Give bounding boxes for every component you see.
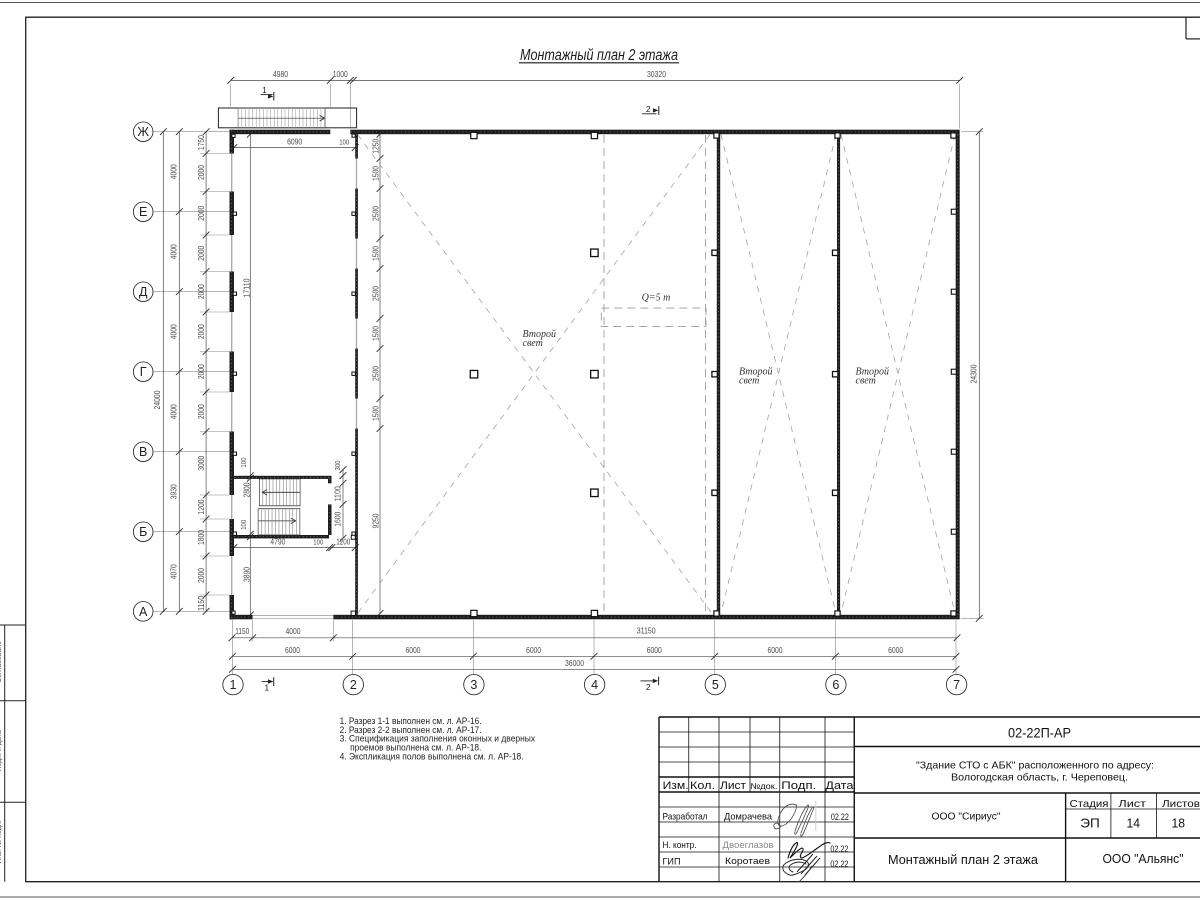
svg-text:30320: 30320: [647, 70, 666, 79]
svg-text:02.22: 02.22: [831, 812, 849, 823]
svg-text:1: 1: [264, 683, 269, 693]
svg-text:3000: 3000: [197, 455, 206, 470]
svg-text:4000: 4000: [170, 324, 179, 339]
svg-text:Согласовано: Согласовано: [0, 641, 3, 683]
svg-text:6000: 6000: [526, 646, 541, 655]
svg-text:14: 14: [1127, 816, 1141, 830]
svg-text:6000: 6000: [285, 646, 300, 655]
svg-text:ООО "Сириус": ООО "Сириус": [932, 811, 1001, 823]
svg-text:1: 1: [230, 678, 237, 692]
svg-text:6000: 6000: [647, 646, 662, 655]
svg-text:1500: 1500: [371, 166, 380, 181]
svg-text:Кол.: Кол.: [690, 780, 715, 792]
svg-text:7: 7: [953, 678, 960, 692]
svg-text:18: 18: [1172, 816, 1186, 830]
svg-text:4: 4: [591, 678, 598, 692]
svg-text:"Здание СТО с АБК" расположенн: "Здание СТО с АБК" расположенного по адр…: [916, 759, 1154, 771]
svg-text:02-22П-АР: 02-22П-АР: [1008, 725, 1071, 740]
svg-text:Вологодская область, г. Черепо: Вологодская область, г. Череповец.: [951, 772, 1128, 784]
svg-text:100: 100: [313, 538, 323, 547]
svg-text:1500: 1500: [371, 406, 380, 421]
svg-text:Инв. № подл.: Инв. № подл.: [0, 820, 3, 864]
svg-text:Q=5 т: Q=5 т: [642, 293, 671, 304]
svg-text:1000: 1000: [333, 70, 348, 79]
svg-text:1: 1: [262, 85, 267, 95]
svg-text:2: 2: [350, 678, 357, 692]
svg-text:Д: Д: [139, 285, 148, 299]
svg-text:Листов: Листов: [1162, 798, 1200, 810]
svg-text:2500: 2500: [371, 206, 380, 221]
svg-text:4000: 4000: [286, 627, 301, 636]
svg-text:100: 100: [239, 520, 248, 530]
svg-text:1250: 1250: [371, 138, 380, 153]
svg-text:2000: 2000: [197, 568, 206, 583]
svg-text:4000: 4000: [170, 164, 179, 179]
svg-text:свет: свет: [739, 376, 759, 387]
svg-text:4980: 4980: [273, 70, 288, 79]
svg-text:В: В: [139, 445, 147, 459]
svg-text:1200: 1200: [336, 538, 350, 547]
svg-text:2000: 2000: [197, 245, 206, 260]
svg-text:1150: 1150: [197, 595, 206, 610]
svg-text:Домрачева: Домрачева: [724, 812, 773, 823]
svg-text:2000: 2000: [197, 284, 206, 299]
svg-text:2: 2: [646, 682, 651, 692]
svg-text:3890: 3890: [242, 567, 251, 582]
svg-text:5: 5: [712, 678, 719, 692]
svg-text:Разработал: Разработал: [663, 812, 708, 823]
svg-text:36000: 36000: [565, 659, 584, 668]
svg-text:6000: 6000: [888, 646, 903, 655]
svg-text:02.22: 02.22: [830, 844, 848, 855]
svg-text:6: 6: [832, 678, 839, 692]
svg-text:Монтажный план 2 этажа: Монтажный план 2 этажа: [520, 47, 678, 64]
svg-text:4. Экспликация полов выполнена: 4. Экспликация полов выполнена см. л. АР…: [340, 751, 524, 761]
svg-text:Монтажный план 2 этажа: Монтажный план 2 этажа: [888, 853, 1038, 867]
svg-text:1600: 1600: [334, 511, 343, 526]
svg-text:А: А: [139, 605, 148, 619]
svg-text:1150: 1150: [235, 627, 249, 636]
svg-text:02.22: 02.22: [830, 859, 848, 870]
svg-text:9250: 9250: [371, 513, 380, 528]
svg-text:Б: Б: [139, 525, 147, 539]
svg-text:Ж: Ж: [137, 125, 149, 139]
svg-text:1500: 1500: [371, 326, 380, 341]
svg-text:Подп.: Подп.: [781, 780, 816, 792]
svg-text:24300: 24300: [970, 364, 979, 383]
svg-text:ООО "Альянс": ООО "Альянс": [1103, 852, 1184, 866]
svg-text:1800: 1800: [197, 530, 206, 545]
svg-text:2: 2: [646, 104, 651, 114]
svg-text:3930: 3930: [170, 484, 179, 499]
svg-text:№док.: №док.: [750, 781, 777, 791]
svg-text:6090: 6090: [287, 137, 302, 146]
svg-text:2000: 2000: [197, 205, 206, 220]
svg-text:2500: 2500: [371, 286, 380, 301]
svg-text:Дата: Дата: [825, 780, 854, 792]
svg-text:Г: Г: [140, 365, 147, 379]
svg-text:31150: 31150: [637, 627, 656, 636]
svg-text:1750: 1750: [197, 135, 206, 150]
svg-text:6000: 6000: [406, 646, 421, 655]
svg-text:17110: 17110: [242, 278, 251, 297]
svg-text:ЭП: ЭП: [1080, 816, 1100, 830]
svg-text:Н. контр.: Н. контр.: [663, 840, 697, 851]
svg-text:24000: 24000: [153, 390, 162, 409]
svg-text:свет: свет: [856, 376, 876, 387]
svg-text:Двоеглазов: Двоеглазов: [723, 840, 774, 851]
svg-text:свет: свет: [523, 338, 543, 349]
svg-text:Стадия: Стадия: [1070, 798, 1109, 810]
svg-text:4790: 4790: [270, 538, 285, 547]
svg-text:2000: 2000: [197, 364, 206, 379]
svg-text:2800: 2800: [242, 482, 251, 497]
svg-text:4070: 4070: [170, 564, 179, 579]
svg-text:2500: 2500: [371, 366, 380, 381]
svg-text:4000: 4000: [170, 244, 179, 259]
svg-text:2000: 2000: [197, 324, 206, 339]
svg-text:100: 100: [339, 137, 349, 146]
svg-text:2000: 2000: [197, 165, 206, 180]
svg-text:300: 300: [333, 461, 342, 471]
svg-text:1200: 1200: [197, 499, 206, 514]
svg-text:Е: Е: [139, 205, 147, 219]
svg-text:Лист: Лист: [1118, 798, 1146, 810]
svg-text:Коротаев: Коротаев: [725, 856, 770, 867]
svg-text:2000: 2000: [197, 404, 206, 419]
svg-text:4000: 4000: [170, 404, 179, 419]
svg-text:1500: 1500: [371, 246, 380, 261]
svg-text:1100: 1100: [334, 486, 343, 501]
svg-text:Подп. и дата: Подп. и дата: [0, 730, 3, 771]
svg-text:6000: 6000: [768, 646, 783, 655]
svg-text:100: 100: [239, 458, 248, 468]
svg-text:Изм.: Изм.: [663, 780, 689, 792]
svg-text:ГИП: ГИП: [663, 856, 681, 867]
svg-text:3: 3: [470, 678, 477, 692]
svg-text:Лист: Лист: [720, 780, 746, 792]
